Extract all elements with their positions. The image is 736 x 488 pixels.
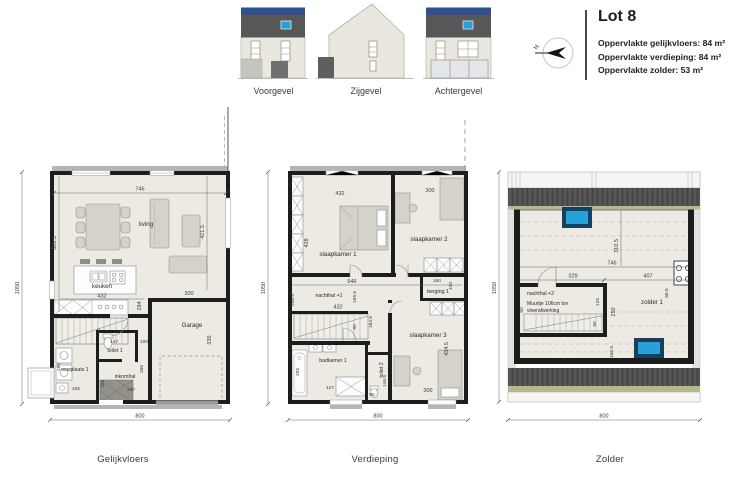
room-inkomhal: inkomhal xyxy=(115,374,136,380)
area-verdieping: Oppervlakte verdieping: 84 m² xyxy=(598,52,725,62)
dim-stairs: 90 xyxy=(352,324,358,330)
dim-155: 155 xyxy=(100,380,106,388)
dim-746: 746 xyxy=(607,261,616,267)
dim-stairs: 90 xyxy=(592,321,598,327)
north-compass: N xyxy=(533,38,573,68)
drawing-sheet: N xyxy=(0,0,736,488)
wardrobe-column xyxy=(291,177,303,271)
dim-total-width: 800 xyxy=(599,414,608,420)
wardrobe-sk2 xyxy=(440,178,464,220)
room-nachthal1: nachthal +1 xyxy=(316,293,343,299)
dim-329: 329 xyxy=(568,274,577,280)
utility-sink xyxy=(56,383,68,393)
dim-166-5: 166.5 xyxy=(609,346,615,358)
elevation-voorgevel xyxy=(238,8,308,79)
dim-total-width: 800 xyxy=(135,414,144,420)
room-zolder1: zolder 1 xyxy=(641,299,664,306)
room-living: living xyxy=(139,221,154,228)
dim-185: 185 xyxy=(56,363,62,371)
stairs xyxy=(524,314,602,331)
sofa-2 xyxy=(169,256,207,273)
plan-label-verdieping: Verdieping xyxy=(315,454,435,465)
washing-machine xyxy=(56,348,72,363)
dim-146-5: 146.5 xyxy=(382,375,388,387)
dim-95: 95 xyxy=(369,392,375,398)
room-toilet1: toilet 1 xyxy=(107,348,122,354)
garage-door xyxy=(156,401,218,405)
elevation-zijgevel xyxy=(316,4,414,79)
stool xyxy=(112,259,122,264)
dim-total-depth: 1050 xyxy=(492,282,498,294)
kitchen-counter xyxy=(54,300,128,315)
meter-box xyxy=(28,368,54,398)
elevation-label-zijgevel: Zijgevel xyxy=(318,86,414,96)
room-sk3: slaapkamer 3 xyxy=(409,332,447,339)
dim-sk1-h: 428 xyxy=(304,238,310,247)
stool xyxy=(96,259,106,264)
plan-label-gelijkvloers: Gelijkvloers xyxy=(63,454,183,465)
dim-hal-432: 432 xyxy=(333,305,342,311)
dim-257: 257 xyxy=(127,387,135,393)
plan-verdieping: 432 428 slaapkamer 1 300 slaapkamer 2 54… xyxy=(261,120,470,422)
dim-toilet: 147 xyxy=(110,339,118,345)
dim-165-5: 165.5 xyxy=(352,291,358,303)
title-divider xyxy=(585,10,587,80)
dim-stairs: 90 xyxy=(96,328,102,334)
elevation-label-voorgevel: Voorgevel xyxy=(240,86,307,96)
dim-sk3-w: 300 xyxy=(423,388,432,394)
dim-310-5: 310.5 xyxy=(614,239,620,253)
stool xyxy=(80,259,90,264)
room-sk1: slaapkamer 1 xyxy=(319,251,357,258)
dim-66-5: 66.5 xyxy=(664,288,670,298)
elevation-label-achtergevel: Achtergevel xyxy=(423,86,494,96)
north-arrow-icon xyxy=(546,47,566,59)
solar-panel-strip xyxy=(426,8,491,15)
dim-127: 127 xyxy=(326,385,334,391)
dim-50: 50 xyxy=(519,307,525,313)
dim-266: 266 xyxy=(139,365,145,373)
dim-sk1-w: 432 xyxy=(335,191,344,197)
side-extension xyxy=(318,57,334,78)
dim-126: 126 xyxy=(595,298,601,306)
solar-panel-strip xyxy=(241,8,305,15)
dim-434-5: 434.5 xyxy=(444,342,450,356)
dim-garage-w: 300 xyxy=(184,291,193,297)
compass-n-label: N xyxy=(533,44,541,51)
dim-total-depth: 1050 xyxy=(15,282,21,294)
dim-total-width: 800 xyxy=(373,414,382,420)
dim-407: 407 xyxy=(643,274,652,280)
note-muurtje-1: Muurtje 106cm tov xyxy=(527,301,569,307)
dim-right: 421.5 xyxy=(200,225,206,239)
dim-keuken: 432 xyxy=(97,294,106,300)
room-badkamer: badkamer 1 xyxy=(319,358,347,364)
dim-total-depth: 1050 xyxy=(261,282,267,294)
room-sk2: slaapkamer 2 xyxy=(410,236,448,243)
dim-184-5: 184.5 xyxy=(368,316,374,328)
skylight-icon xyxy=(463,21,473,29)
lot-area-summary: Oppervlakte gelijkvloers: 84 m² Oppervla… xyxy=(598,38,725,79)
dim-garage-h: 535 xyxy=(207,335,213,344)
dim-165: 165 xyxy=(72,386,80,392)
dim-berging-w: 160 xyxy=(433,278,441,284)
armchair xyxy=(182,215,200,247)
dim-living-width: 746 xyxy=(135,187,144,193)
dim-266-5: 266.5 xyxy=(290,294,296,306)
dim-berging-h: 100 xyxy=(448,282,454,290)
dining-table xyxy=(86,204,120,250)
chair xyxy=(409,204,417,212)
dim-284: 284 xyxy=(137,301,143,310)
area-zolder: Oppervlakte zolder: 53 m² xyxy=(598,65,725,75)
skylight-icon xyxy=(281,21,291,29)
dim-255: 255 xyxy=(295,368,301,376)
plan-label-zolder: Zolder xyxy=(550,454,670,465)
room-wasplaats: wasplaats 1 xyxy=(61,367,89,373)
plan-zolder: 310.5 746 329 407 66.5 nachthal +2 Muurt… xyxy=(492,170,702,422)
note-muurtje-2: vloerafwerking xyxy=(527,308,559,314)
room-nachthal2: nachthal +2 xyxy=(527,291,554,297)
chair xyxy=(413,367,421,375)
lot-title: Lot 8 xyxy=(598,8,636,26)
plan-gelijkvloers: 746 601.5 421.5 living keuken 432 284 30… xyxy=(15,107,232,422)
room-garage: Garage xyxy=(182,322,203,329)
room-keuken: keuken xyxy=(92,283,113,290)
area-gelijkvloers: Oppervlakte gelijkvloers: 84 m² xyxy=(598,38,725,48)
elevation-achtergevel xyxy=(423,8,494,79)
dim-100: 100 xyxy=(140,339,148,345)
room-berging: berging 1 xyxy=(427,289,449,295)
dim-250: 250 xyxy=(611,307,617,316)
desk-sk2 xyxy=(395,193,410,223)
desk-sk3 xyxy=(394,356,410,386)
dim-546: 546 xyxy=(347,279,356,285)
front-door xyxy=(271,61,288,78)
dim-sk2-w: 300 xyxy=(425,188,434,194)
dim-left: 601.5 xyxy=(52,236,58,250)
front-door-opening xyxy=(99,400,123,404)
